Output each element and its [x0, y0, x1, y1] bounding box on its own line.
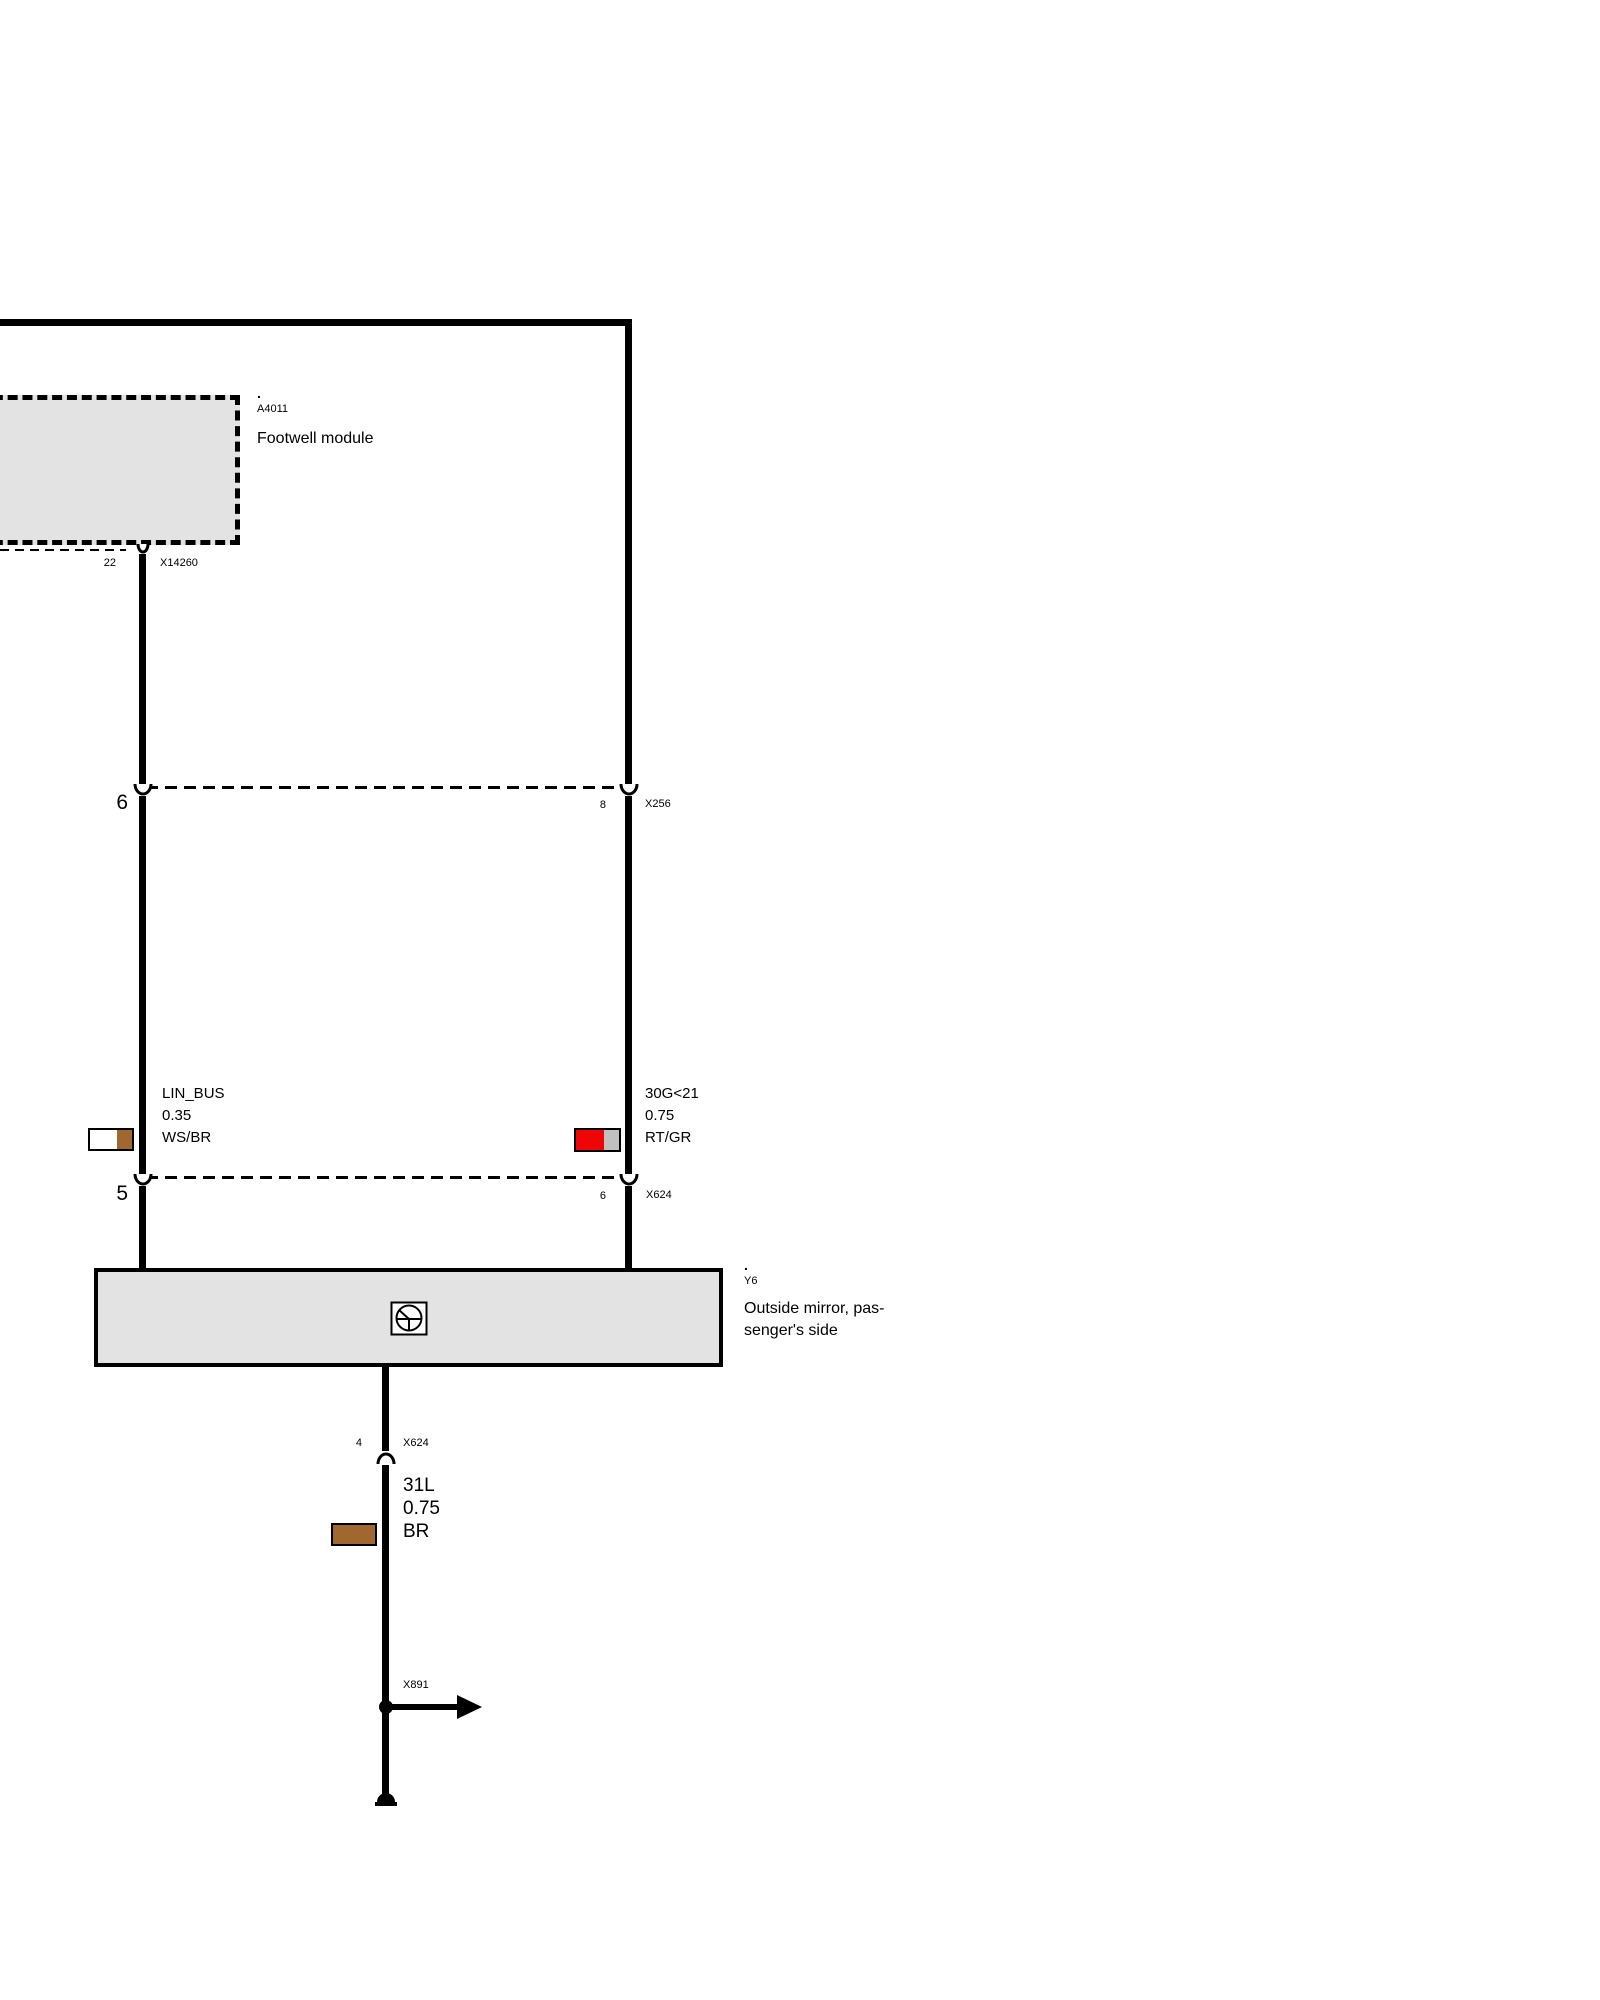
g30-signal: 30G<21	[645, 1085, 699, 1102]
wire-31l-segment-3	[382, 1712, 389, 1797]
wire-31l-segment-2	[382, 1465, 389, 1703]
wire-30g-segment-3	[625, 1186, 632, 1268]
wire-30g-segment-1	[625, 326, 632, 784]
mirror-module-name: Outside mirror, pas-senger's side	[744, 1298, 884, 1342]
lin-size: 0.35	[162, 1107, 191, 1124]
wire-30g-segment-2	[625, 796, 632, 1176]
connector-cup-icon-x624-left	[133, 1173, 153, 1187]
connector-cup-icon-x256-left	[133, 783, 153, 797]
mirror-module-code: Y6	[744, 1276, 757, 1287]
wire-lin-segment-1	[139, 554, 146, 784]
footwell-module-box	[0, 395, 240, 545]
x256-pin-right: 8	[578, 800, 606, 811]
lin-color-swatch	[88, 1128, 134, 1151]
wiring-diagram-page: . A4011 Footwell module 22 X14260 6 8 X2…	[0, 0, 1600, 2000]
g30-color: RT/GR	[645, 1129, 691, 1146]
x14260-label: X14260	[160, 558, 198, 569]
swatch-brown-cell	[117, 1130, 132, 1149]
l31-color: BR	[403, 1521, 429, 1542]
branch-arrow-icon	[457, 1695, 482, 1719]
connector-cup-icon-x624-mirror	[376, 1451, 396, 1465]
x624-label: X624	[646, 1190, 672, 1201]
g30-color-swatch	[574, 1128, 621, 1152]
mirror-motor-icon	[390, 1301, 428, 1336]
footwell-module-dot: .	[257, 386, 261, 400]
swatch-red-cell	[576, 1130, 604, 1150]
x624-pin-right: 6	[578, 1191, 606, 1202]
swatch-gray-cell	[604, 1130, 619, 1150]
g30-size: 0.75	[645, 1107, 674, 1124]
wire-lin-segment-2	[139, 796, 146, 1176]
connector-cup-icon-x624-right	[619, 1173, 639, 1187]
connector-cup-icon-x256-right	[619, 783, 639, 797]
l31-wire-label: 31L0.75BR	[403, 1474, 440, 1543]
ground-icon	[372, 1789, 400, 1807]
x256-connector-line	[146, 786, 626, 789]
x624-mirror-pin: 4	[334, 1438, 362, 1449]
mirror-module-dot: .	[744, 1258, 748, 1272]
l31-signal: 31L	[403, 1475, 435, 1496]
top-bus-wire	[0, 319, 632, 326]
wire-31l-segment-1	[382, 1367, 389, 1451]
x624-mirror-label: X624	[403, 1438, 429, 1449]
x256-label: X256	[645, 799, 671, 810]
x14260-pin: 22	[84, 558, 116, 569]
x624-pin-left: 5	[80, 1183, 128, 1204]
l31-size: 0.75	[403, 1498, 440, 1519]
x256-pin-left: 6	[80, 792, 128, 813]
l31-color-swatch	[331, 1523, 377, 1546]
x624-connector-line	[146, 1176, 626, 1179]
mirror-name-line2: senger's side	[744, 1322, 838, 1339]
connector-cup-icon-x14260	[136, 543, 150, 554]
footwell-module-name: Footwell module	[257, 428, 374, 450]
lin-bus-wire-label: LIN_BUS0.35WS/BR	[162, 1083, 225, 1149]
branch-wire	[391, 1704, 459, 1710]
lin-color: WS/BR	[162, 1129, 211, 1146]
module-connector-strip-line	[0, 549, 126, 551]
footwell-module-code: A4011	[257, 404, 288, 415]
swatch-white-cell	[90, 1130, 117, 1149]
lin-signal: LIN_BUS	[162, 1085, 225, 1102]
g30-wire-label: 30G<210.75RT/GR	[645, 1083, 699, 1149]
swatch-brown-cell-full	[333, 1525, 375, 1544]
x891-label: X891	[403, 1680, 429, 1691]
mirror-name-line1: Outside mirror, pas-	[744, 1300, 884, 1317]
wire-lin-segment-3	[139, 1186, 146, 1268]
